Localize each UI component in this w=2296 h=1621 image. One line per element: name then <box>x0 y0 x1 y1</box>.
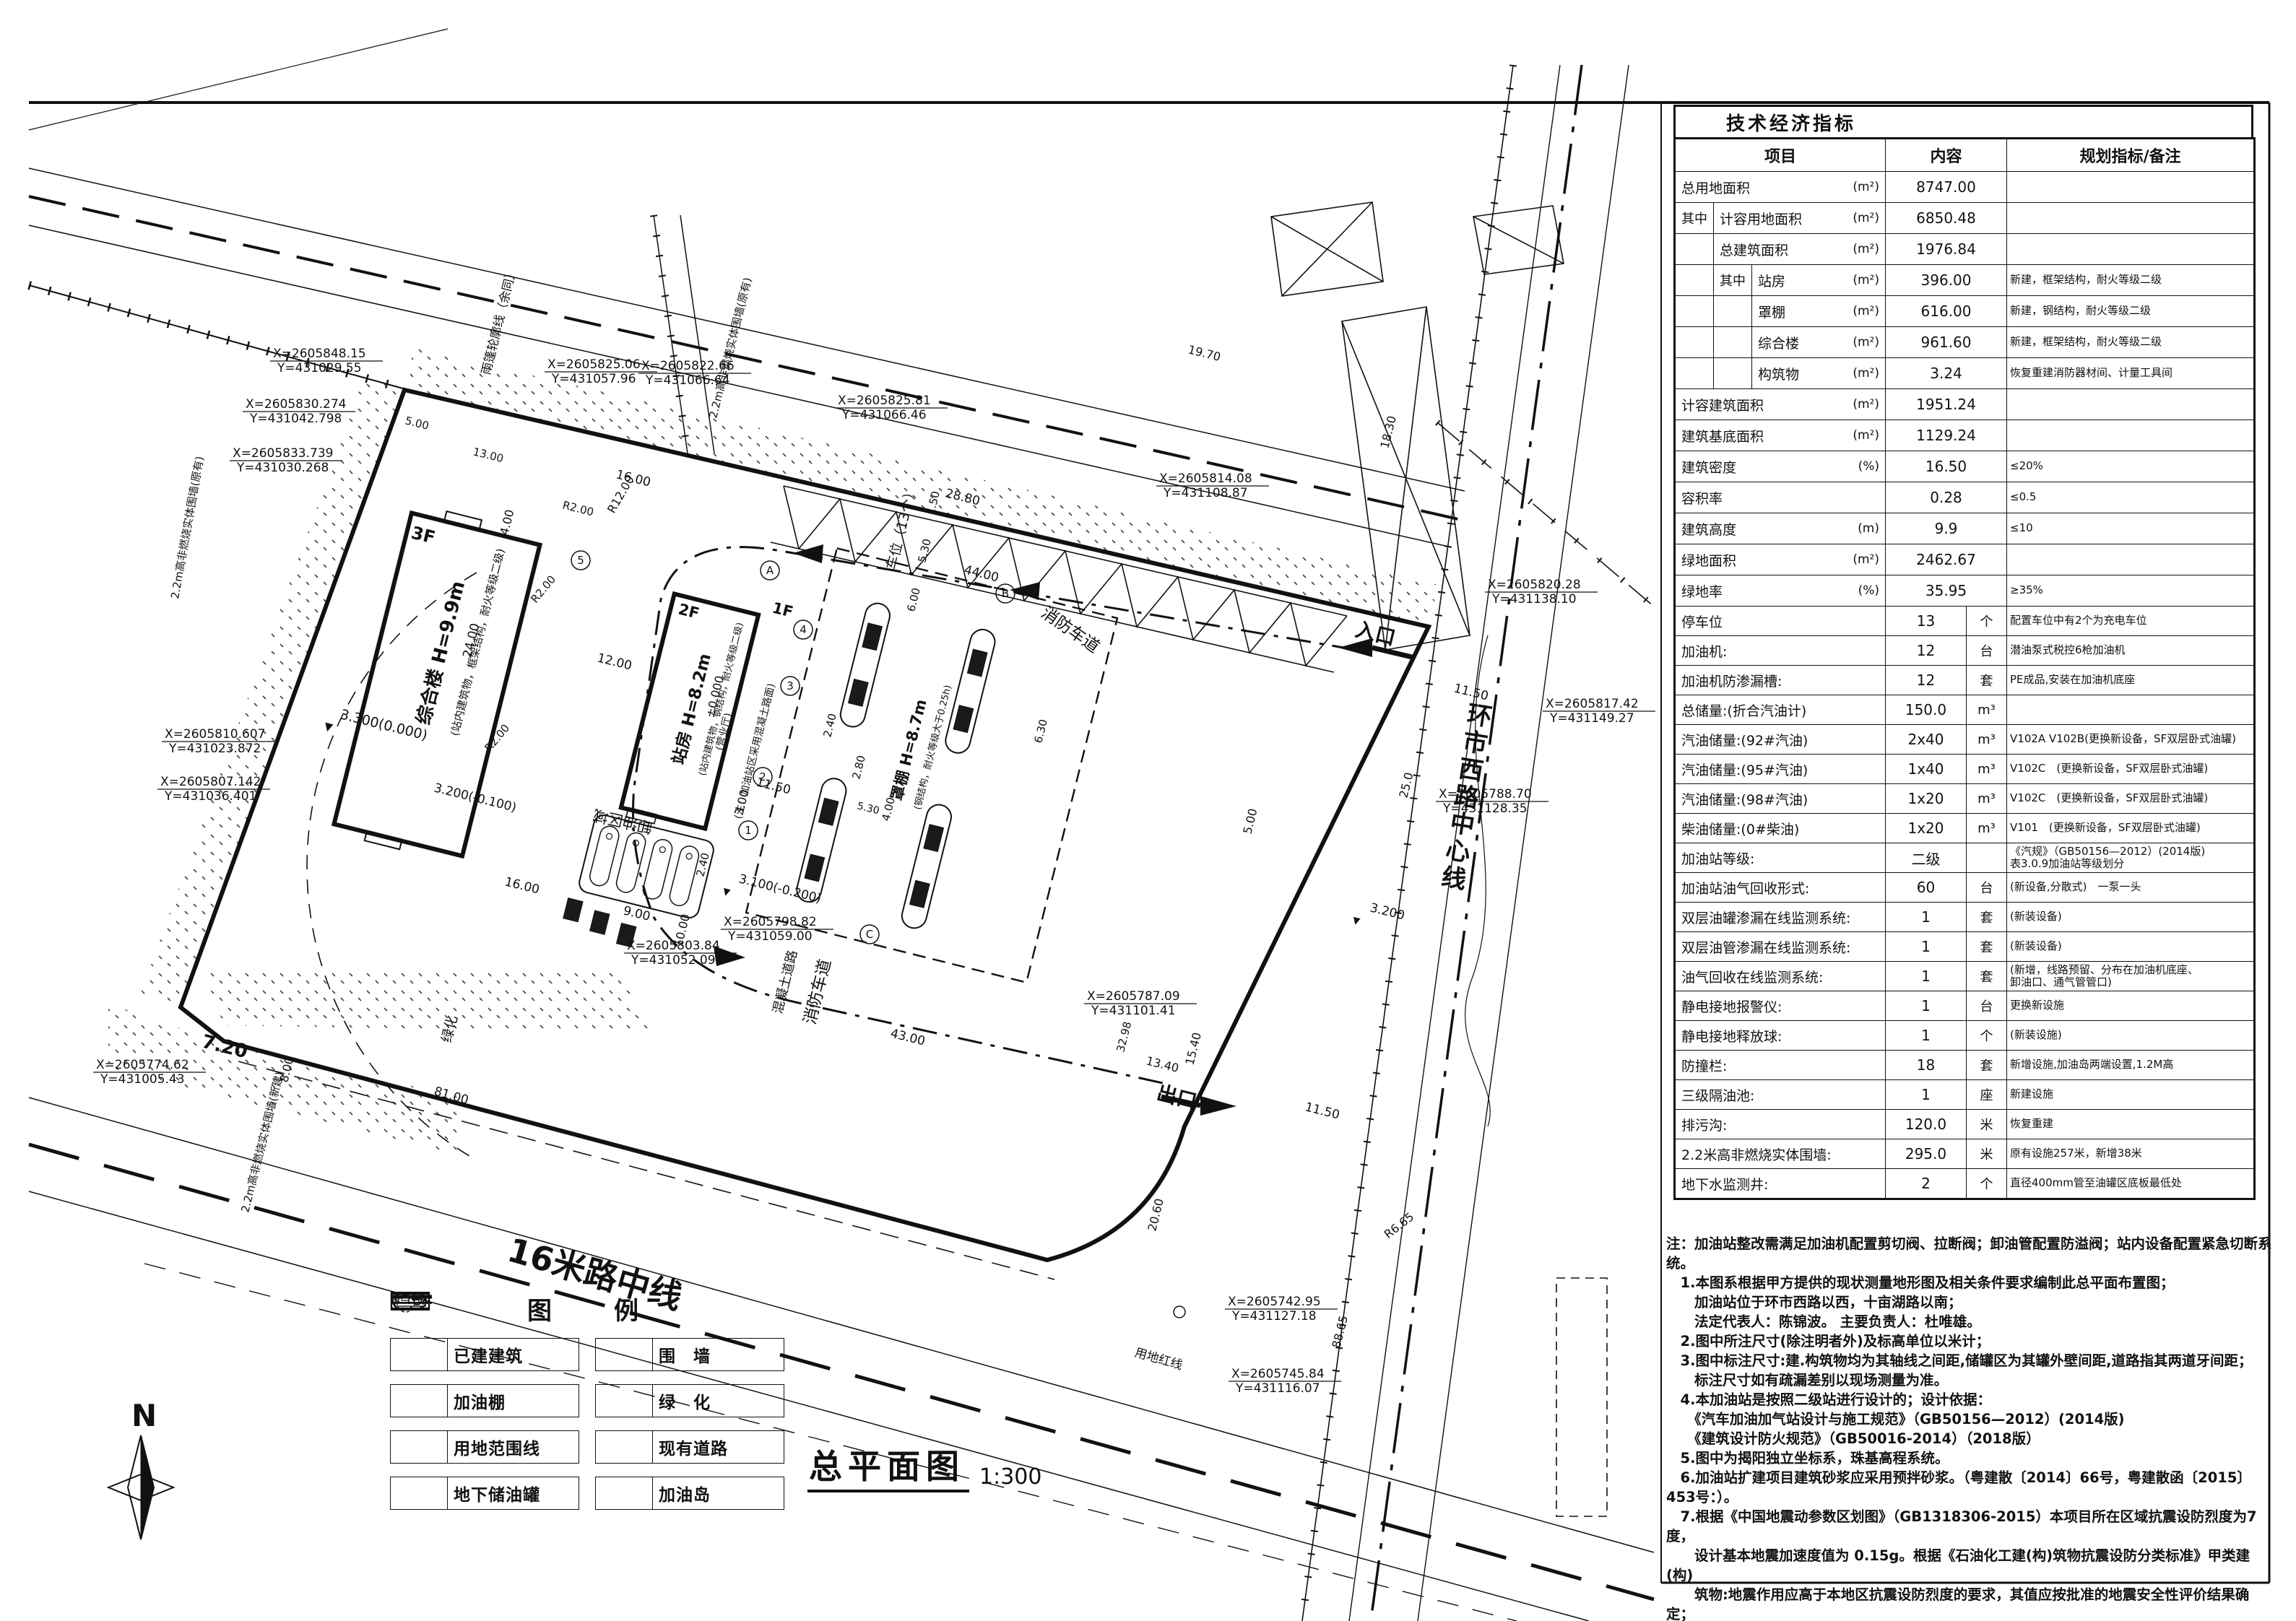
row-value: 6850.48 <box>1886 203 2007 234</box>
col-content: 内容 <box>1886 139 2007 172</box>
row-value: 12 <box>1886 636 1967 666</box>
plan-label: R2.00 <box>561 498 595 518</box>
row-label: 建筑高度 <box>1676 513 1858 544</box>
plan-label: 出口 <box>1154 1081 1199 1114</box>
plan-label: 88.65 <box>1329 1314 1351 1350</box>
row-value: 1x20 <box>1886 784 1967 814</box>
plan-label: 13.00 <box>472 445 505 465</box>
row-group <box>1676 234 1714 264</box>
table-row: 柴油储量:(0#柴油) 1x20 m³ V101 (更换新设备，SF双层卧式油罐… <box>1675 814 2255 843</box>
coordinate-y: Y=431042.798 <box>249 412 342 426</box>
coordinate-x: X=2605833.739 <box>233 446 333 461</box>
row-label: 三级隔油池: <box>1676 1080 1885 1109</box>
axis-number: 3 <box>787 679 794 692</box>
note-line: 《建筑设计防火规范》（GB50016-2014）（2018版） <box>1666 1429 2276 1448</box>
row-note: V102A V102B(更换新设备，SF双层卧式油罐) <box>2007 725 2255 755</box>
row-label: 建筑基底面积 <box>1676 420 1853 451</box>
plan-label: 3.200 <box>1369 900 1406 923</box>
row-note: (新增，线路预留、分布在加油机底座、 卸油口、通气管管口) <box>2007 962 2255 991</box>
row-value: 二级 <box>1886 843 1967 873</box>
table-row: 静电接地报警仪: 1 台 更换新设施 <box>1675 991 2255 1021</box>
row-label: 站房 <box>1752 265 1853 295</box>
row-label: 计容建筑面积 <box>1676 389 1853 420</box>
plan-label: ▼ <box>1351 915 1361 927</box>
note-line: 设计基本地震加速度值为 0.15g。根据《石油化工建(构)筑物抗震设防分类标准》… <box>1666 1546 2276 1585</box>
coordinate-x: X=2605742.95 <box>1228 1295 1321 1309</box>
row-unit: m³ <box>1967 695 2007 725</box>
plan-label: 2.40 <box>820 712 839 739</box>
row-unit: (m²) <box>1853 265 1885 295</box>
row-unit: 套 <box>1967 1051 2007 1080</box>
row-unit: 座 <box>1967 1080 2007 1110</box>
fire-lane-arrow <box>793 544 823 563</box>
legend-item: 加油棚 <box>390 1384 579 1417</box>
table-row: 停车位 13 个 配置车位中有2个为充电车位 <box>1675 607 2255 636</box>
row-note <box>2007 420 2255 451</box>
note-line: 6.加油站扩建项目建筑砂浆应采用预拌砂浆。（粤建散〔2014〕66号，粤建散函〔… <box>1666 1468 2276 1507</box>
row-note: 新建设施 <box>2007 1080 2255 1110</box>
row-note: (新设备,分散式) 一泵一头 <box>2007 873 2255 903</box>
row-unit: 台 <box>1967 873 2007 903</box>
row-note: 更换新设施 <box>2007 991 2255 1021</box>
north-compass <box>108 1435 173 1539</box>
row-value: 0.28 <box>1886 482 2007 513</box>
row-value: 35.95 <box>1886 575 2007 607</box>
row-unit: m³ <box>1967 725 2007 755</box>
coordinate-x: X=2605825.06 <box>547 357 641 372</box>
row-note: 恢复重建 <box>2007 1110 2255 1139</box>
row-value: 3.24 <box>1886 358 2007 389</box>
row-unit: (m²) <box>1853 172 1885 202</box>
coordinate-x: X=2605787.09 <box>1087 989 1180 1004</box>
note-line: 注：加油站整改需满足加油机配置剪切阀、拉断阀；卸油管配置防溢阀；站内设备配置紧急… <box>1666 1234 2276 1273</box>
row-note: PE成品,安装在加油机底座 <box>2007 666 2255 695</box>
south-road-16m <box>29 1098 1654 1621</box>
title-scale: 1:300 <box>979 1464 1041 1492</box>
note-line: 3.图中标注尺寸:建.构筑物均为其轴线之间距,储罐区为其罐外壁间距,道路指其两道… <box>1666 1351 2276 1370</box>
row-value: 1 <box>1886 932 1967 962</box>
row-label: 绿地率 <box>1676 575 1858 606</box>
row-note: 潜油泵式税控6枪加油机 <box>2007 636 2255 666</box>
table-title: 技术经济指标 <box>1673 105 2253 137</box>
row-value: 1 <box>1886 1021 1967 1051</box>
plan-label: 12.00 <box>596 651 633 673</box>
table-row: 加油站油气回收形式: 60 台 (新设备,分散式) 一泵一头 <box>1675 873 2255 903</box>
existing-road-icon <box>596 1431 653 1463</box>
row-unit: 套 <box>1967 666 2007 695</box>
row-note <box>2007 389 2255 420</box>
row-value: 13 <box>1886 607 1967 636</box>
row-subgroup <box>1714 358 1752 388</box>
row-subgroup <box>1714 296 1752 326</box>
axis-number: 5 <box>577 554 584 567</box>
coordinate-x: X=2605814.08 <box>1159 471 1252 486</box>
table-section-equipment: 停车位 13 个 配置车位中有2个为充电车位 加油机: 12 台 潜油泵式税控6… <box>1675 607 2255 1199</box>
underground-tank-icon <box>391 1477 448 1509</box>
row-note: ≤0.5 <box>2007 482 2255 513</box>
fuel-island <box>838 601 892 729</box>
wall-icon <box>596 1339 653 1370</box>
plan-label: 25.0 <box>1396 771 1416 799</box>
row-label: 排污沟: <box>1676 1110 1885 1139</box>
row-label: 加油站油气回收形式: <box>1676 873 1885 902</box>
tech-economic-table: 技术经济指标 项目 内容 规划指标/备注 总用地面积 <box>1673 105 2253 1200</box>
row-unit: (m²) <box>1853 234 1885 264</box>
coordinate-x: X=2605774.62 <box>96 1058 189 1072</box>
note-line: 2.图中所注尺寸(除注明者外)及标高单位以米计； <box>1666 1331 2276 1351</box>
row-unit: 台 <box>1967 636 2007 666</box>
row-unit: (m²) <box>1853 544 1885 575</box>
table-row: 总储量:(折合汽油计) 150.0 m³ <box>1675 695 2255 725</box>
table-row: 静电接地释放球: 1 个 (新装设施) <box>1675 1021 2255 1051</box>
col-item: 项目 <box>1675 139 1886 172</box>
row-label: 建筑密度 <box>1676 451 1858 482</box>
table-row: 绿地率 (%) 35.95 ≥35% <box>1675 575 2255 607</box>
row-unit: (m²) <box>1853 358 1885 388</box>
row-group: 其中 <box>1676 203 1714 233</box>
legend-item: 已建建筑 <box>390 1338 579 1371</box>
coordinate-y: Y=431052.09 <box>631 953 716 968</box>
coordinate-x: X=2605798.82 <box>724 915 817 929</box>
note-line: 4.本加油站是按照二级站进行设计的；设计依据： <box>1666 1390 2276 1409</box>
coordinate-y: Y=431149.27 <box>1549 711 1634 726</box>
row-note: V101 (更换新设备，SF双层卧式油罐) <box>2007 814 2255 843</box>
row-label: 加油站等级: <box>1676 843 1885 872</box>
coordinate-x: X=2605807.142 <box>160 775 261 789</box>
row-value: 18 <box>1886 1051 1967 1080</box>
row-label: 综合楼 <box>1752 327 1853 357</box>
row-unit: (m²) <box>1853 203 1885 233</box>
coordinate-y: Y=431036.401 <box>164 789 256 804</box>
row-unit: m³ <box>1967 814 2007 843</box>
row-value: 150.0 <box>1886 695 1967 725</box>
coordinate-x: X=2605822.66 <box>641 359 735 373</box>
row-subgroup: 其中 <box>1714 265 1752 295</box>
row-note: 新建，框架结构，耐火等级二级 <box>2007 327 2255 358</box>
coordinate-y: Y=431066.64 <box>645 373 730 388</box>
axis-number: A <box>766 564 774 577</box>
row-value: 12 <box>1886 666 1967 695</box>
plan-label: 11.50 <box>1304 1100 1341 1122</box>
row-value: 1129.24 <box>1886 420 2007 451</box>
plan-label: 2.2m高非燃烧实体围墙(原有) <box>706 276 754 420</box>
legend-title: 图 例 <box>390 1291 794 1326</box>
note-line: 筑物:地震作用应高于本地区抗震设防烈度的要求，其值应按批准的地震安全性评价结果确… <box>1666 1585 2276 1621</box>
table-row: 罩棚 (m²) 616.00 新建，钢结构，耐火等级二级 <box>1675 296 2255 327</box>
table-header: 项目 内容 规划指标/备注 <box>1675 139 2255 172</box>
plan-label: 9.00 <box>622 903 652 924</box>
row-label: 加油机: <box>1676 636 1885 665</box>
coordinate-y: Y=431066.46 <box>841 408 927 422</box>
row-value: 396.00 <box>1886 265 2007 296</box>
table-row: 建筑密度 (%) 16.50 ≤20% <box>1675 451 2255 482</box>
table-row: 建筑高度 (m) 9.9 ≤10 <box>1675 513 2255 544</box>
plan-label: 18.30 <box>1377 414 1399 450</box>
canopy-icon <box>391 1385 448 1417</box>
row-value: 9.9 <box>1886 513 2007 544</box>
row-value: 1 <box>1886 1080 1967 1110</box>
row-unit: 台 <box>1967 991 2007 1021</box>
row-value: 120.0 <box>1886 1110 1967 1139</box>
coordinate-x: X=2605803.84 <box>627 939 720 953</box>
coordinate-x: X=2605810.607 <box>165 727 265 742</box>
table-row: 容积率 0.28 ≤0.5 <box>1675 482 2255 513</box>
boundary-line-icon <box>391 1431 448 1463</box>
row-unit: 个 <box>1967 607 2007 636</box>
row-label: 双层油罐渗漏在线监测系统: <box>1676 903 1885 931</box>
plan-label: 1F <box>771 599 795 621</box>
row-value: 1 <box>1886 903 1967 932</box>
row-unit: (m²) <box>1853 389 1885 420</box>
table-row: 排污沟: 120.0 米 恢复重建 <box>1675 1110 2255 1139</box>
row-note: (新装设备) <box>2007 903 2255 932</box>
row-value: 616.00 <box>1886 296 2007 327</box>
row-value: 1 <box>1886 962 1967 991</box>
row-label: 构筑物 <box>1752 358 1853 388</box>
note-line: 标注尺寸如有疏漏差别以现场测量为准。 <box>1666 1370 2276 1390</box>
coordinate-x: X=2605848.15 <box>273 347 366 361</box>
plan-label: 4.00 <box>879 796 898 822</box>
note-line: 加油站位于环市西路以西，十亩湖路以南； <box>1666 1292 2276 1312</box>
row-value: 16.50 <box>1886 451 2007 482</box>
row-value: 2x40 <box>1886 725 1967 755</box>
row-label: 2.2米高非燃烧实体围墙: <box>1676 1139 1885 1168</box>
col-note: 规划指标/备注 <box>2007 139 2255 172</box>
coordinate-x: X=2605788.70 <box>1439 787 1532 801</box>
table-row: 2.2米高非燃烧实体围墙: 295.0 米 原有设施257米，新增38米 <box>1675 1139 2255 1169</box>
row-value: 1x20 <box>1886 814 1967 843</box>
row-label: 容积率 <box>1676 482 1879 513</box>
table-row: 总用地面积 (m²) 8747.00 <box>1675 172 2255 203</box>
fuel-island <box>899 802 953 931</box>
row-unit: 套 <box>1967 903 2007 932</box>
coordinate-y: Y=431057.96 <box>551 372 636 386</box>
coordinate-x: X=2605745.84 <box>1231 1367 1325 1381</box>
legend: 图 例 已建建筑 围 墙 加油棚 绿 化 <box>390 1291 794 1510</box>
plan-label: 消防车道 <box>801 957 835 1027</box>
row-value: 8747.00 <box>1886 172 2007 203</box>
table-row: 构筑物 (m²) 3.24 恢复重建消防器材间、计量工具间 <box>1675 358 2255 389</box>
row-label: 总建筑面积 <box>1714 234 1853 264</box>
table-row: 绿地面积 (m²) 2462.67 <box>1675 544 2255 575</box>
row-value: 1x40 <box>1886 755 1967 784</box>
row-label: 罩棚 <box>1752 296 1853 326</box>
coordinate-y: Y=431030.268 <box>236 461 329 475</box>
coordinate-y: Y=431138.10 <box>1491 592 1577 607</box>
row-note: 原有设施257米，新增38米 <box>2007 1139 2255 1169</box>
row-note: V102C (更换新设备，SF双层卧式油罐) <box>2007 784 2255 814</box>
row-label: 绿地面积 <box>1676 544 1853 575</box>
table-row: 双层油罐渗漏在线监测系统: 1 套 (新装设备) <box>1675 903 2255 932</box>
table-row: 总建筑面积 (m²) 1976.84 <box>1675 234 2255 265</box>
row-note: ≤20% <box>2007 451 2255 482</box>
row-unit: (m²) <box>1853 327 1885 357</box>
plan-label: 16.00 <box>503 874 541 897</box>
plan-label: N <box>131 1398 157 1433</box>
table-row: 加油站等级: 二级 《汽规》（GB50156—2012）(2014版) 表3.0… <box>1675 843 2255 873</box>
row-note <box>2007 203 2255 234</box>
greening-icon <box>596 1385 653 1417</box>
table-row: 其中 计容用地面积 (m²) 6850.48 <box>1675 203 2255 234</box>
plan-label: 20.60 <box>1145 1197 1166 1233</box>
row-group <box>1676 296 1714 326</box>
plan-label: 雨篷轮廓线（余同） <box>479 266 519 376</box>
plan-label: 用地红线 <box>1133 1346 1184 1373</box>
row-label: 停车位 <box>1676 607 1885 635</box>
axis-number: 1 <box>745 824 752 837</box>
row-unit: m³ <box>1967 784 2007 814</box>
drawing-title: 总平面图 1:300 <box>807 1440 1041 1492</box>
row-label: 双层油管渗漏在线监测系统: <box>1676 932 1885 961</box>
plan-label: 2.40 <box>693 851 712 878</box>
row-value: 961.60 <box>1886 327 2007 358</box>
row-label: 总储量:(折合汽油计) <box>1676 695 1885 724</box>
plan-label: 3.00 <box>732 788 751 817</box>
coordinate-y: Y=431128.35 <box>1442 801 1528 816</box>
row-note: 《汽规》（GB50156—2012）(2014版) 表3.0.9加油站等级划分 <box>2007 843 2255 873</box>
row-value: 60 <box>1886 873 1967 903</box>
legend-item: 用地范围线 <box>390 1430 579 1464</box>
row-value: 1 <box>1886 991 1967 1021</box>
table-row: 油气回收在线监测系统: 1 套 (新增，线路预留、分布在加油机底座、 卸油口、通… <box>1675 962 2255 991</box>
plan-label: 19.70 <box>1187 342 1222 364</box>
row-label: 油气回收在线监测系统: <box>1676 962 1885 991</box>
row-label: 静电接地报警仪: <box>1676 991 1885 1020</box>
coordinate-x: X=2605830.274 <box>246 397 346 412</box>
axis-number: C <box>866 928 873 941</box>
row-note <box>2007 234 2255 265</box>
row-note: 新建，钢结构，耐火等级二级 <box>2007 296 2255 327</box>
plan-label: 5.30 <box>915 537 934 564</box>
table-section-areas: 总用地面积 (m²) 8747.00 其中 计容用地面积 (m²) <box>1675 172 2255 607</box>
axis-number: 2 <box>759 770 766 783</box>
row-value: 2462.67 <box>1886 544 2007 575</box>
row-unit: 套 <box>1967 932 2007 962</box>
axis-number: 4 <box>800 623 807 636</box>
row-unit: 个 <box>1967 1021 2007 1051</box>
row-note <box>2007 544 2255 575</box>
legend-item: 加油岛 <box>595 1477 784 1510</box>
table-row: 综合楼 (m²) 961.60 新建，框架结构，耐火等级二级 <box>1675 327 2255 358</box>
row-group <box>1676 265 1714 295</box>
coordinate-x: X=2605825.81 <box>838 394 931 408</box>
table-row: 汽油储量:(92#汽油) 2x40 m³ V102A V102B(更换新设备，S… <box>1675 725 2255 755</box>
plan-label: 5.00 <box>1240 807 1260 835</box>
coordinate-x: X=2605817.42 <box>1546 697 1639 711</box>
row-value: 1976.84 <box>1886 234 2007 265</box>
table-row: 加油机防渗漏槽: 12 套 PE成品,安装在加油机底座 <box>1675 666 2255 695</box>
plan-label: 5.00 <box>404 414 430 433</box>
row-group <box>1676 327 1714 357</box>
row-unit: (m²) <box>1853 296 1885 326</box>
note-line: 7.根据《中国地震动参数区划图》（GB1318306-2015）本项目所在区域抗… <box>1666 1507 2276 1546</box>
row-value: 295.0 <box>1886 1139 1967 1169</box>
plan-label: 15.40 <box>1182 1031 1204 1066</box>
row-label: 防撞栏: <box>1676 1051 1885 1079</box>
table-row: 汽油储量:(95#汽油) 1x40 m³ V102C (更换新设备，SF双层卧式… <box>1675 755 2255 784</box>
table-row: 三级隔油池: 1 座 新建设施 <box>1675 1080 2255 1110</box>
note-line: 5.图中为揭阳独立坐标系，珠基高程系统。 <box>1666 1448 2276 1468</box>
plan-label: 6.00 <box>904 586 923 613</box>
plan-label: 4.00 <box>497 508 516 536</box>
plan-label: 13.40 <box>1145 1053 1180 1075</box>
plan-label: R6.65 <box>1382 1209 1417 1241</box>
row-unit: 套 <box>1967 962 2007 991</box>
plan-label: 44.00 <box>963 562 1000 585</box>
plan-label: R2.00 <box>482 721 512 754</box>
table-row: 防撞栏: 18 套 新增设施,加油岛两端设置,1.2M高 <box>1675 1051 2255 1080</box>
legend-item: 绿 化 <box>595 1384 784 1417</box>
row-group <box>1676 358 1714 388</box>
row-unit: 米 <box>1967 1139 2007 1169</box>
legend-item: 围 墙 <box>595 1338 784 1371</box>
row-note <box>2007 695 2255 725</box>
table-row: 计容建筑面积 (m²) 1951.24 <box>1675 389 2255 420</box>
row-label: 计容用地面积 <box>1714 203 1853 233</box>
plan-label: R12.00 <box>605 473 637 516</box>
row-label: 汽油储量:(95#汽油) <box>1676 755 1885 783</box>
coordinate-y: Y=431116.07 <box>1235 1381 1320 1396</box>
legend-item: 地下储油罐 <box>390 1477 579 1510</box>
row-subgroup <box>1714 327 1752 357</box>
coordinate-y: Y=431059.00 <box>727 929 813 944</box>
plan-label: 2.80 <box>849 754 868 781</box>
row-note: ≥35% <box>2007 575 2255 607</box>
row-unit: (%) <box>1858 451 1885 482</box>
built-building-icon <box>391 1339 448 1370</box>
row-label: 总用地面积 <box>1676 172 1853 202</box>
fuel-island-icon <box>596 1477 653 1509</box>
table-row: 加油机: 12 台 潜油泵式税控6枪加油机 <box>1675 636 2255 666</box>
note-line: 法定代表人：陈锦波。 主要负责人：杜唯雄。 <box>1666 1312 2276 1331</box>
row-note: ≤10 <box>2007 513 2255 544</box>
coordinate-y: Y=431127.18 <box>1231 1309 1317 1324</box>
legend-item: 现有道路 <box>595 1430 784 1464</box>
plan-label: 2.2m高非燃烧实体围墙(原有) <box>168 455 206 599</box>
row-unit <box>1967 843 2007 873</box>
plan-label: 6.30 <box>1031 718 1050 744</box>
row-label: 汽油储量:(98#汽油) <box>1676 784 1885 813</box>
fuel-island <box>794 776 849 905</box>
row-unit <box>1879 482 1885 513</box>
table-row: 建筑基底面积 (m²) 1129.24 <box>1675 420 2255 451</box>
plan-label: ▼ <box>722 886 731 898</box>
note-line: 1.本图系根据甲方提供的现状测量地形图及相关条件要求编制此总平面布置图； <box>1666 1273 2276 1292</box>
row-note: 恢复重建消防器材间、计量工具间 <box>2007 358 2255 389</box>
row-unit: (%) <box>1858 575 1885 606</box>
coordinate-y: Y=431023.872 <box>168 742 261 756</box>
row-unit: m³ <box>1967 755 2007 784</box>
row-note: 新增设施,加油岛两端设置,1.2M高 <box>2007 1051 2255 1080</box>
row-note: V102C (更换新设备，SF双层卧式油罐) <box>2007 755 2255 784</box>
axis-number: B <box>1002 587 1009 600</box>
row-label: 柴油储量:(0#柴油) <box>1676 814 1885 843</box>
row-label: 加油机防渗漏槽: <box>1676 666 1885 695</box>
general-notes: 注：加油站整改需满足加油机配置剪切阀、拉断阀；卸油管配置防溢阀；站内设备配置紧急… <box>1666 1175 2276 1621</box>
plan-label: 混凝土道路 <box>770 949 800 1015</box>
plan-label: 5.30 <box>856 800 880 817</box>
row-value: 1951.24 <box>1886 389 2007 420</box>
table-row: 汽油储量:(98#汽油) 1x20 m³ V102C (更换新设备，SF双层卧式… <box>1675 784 2255 814</box>
row-note: (新装设备) <box>2007 932 2255 962</box>
coordinate-y: Y=431101.41 <box>1091 1004 1176 1018</box>
title-text: 总平面图 <box>807 1440 969 1492</box>
plan-label: 2F <box>677 601 701 622</box>
coordinate-y: Y=431029.55 <box>277 361 362 375</box>
drawing-sheet: N入口出口16米路中线环市西路中心线综合楼 H=9.9m(站内建筑物，框架结构，… <box>0 0 2296 1621</box>
row-note: (新装设施) <box>2007 1021 2255 1051</box>
row-unit: (m) <box>1858 513 1885 544</box>
